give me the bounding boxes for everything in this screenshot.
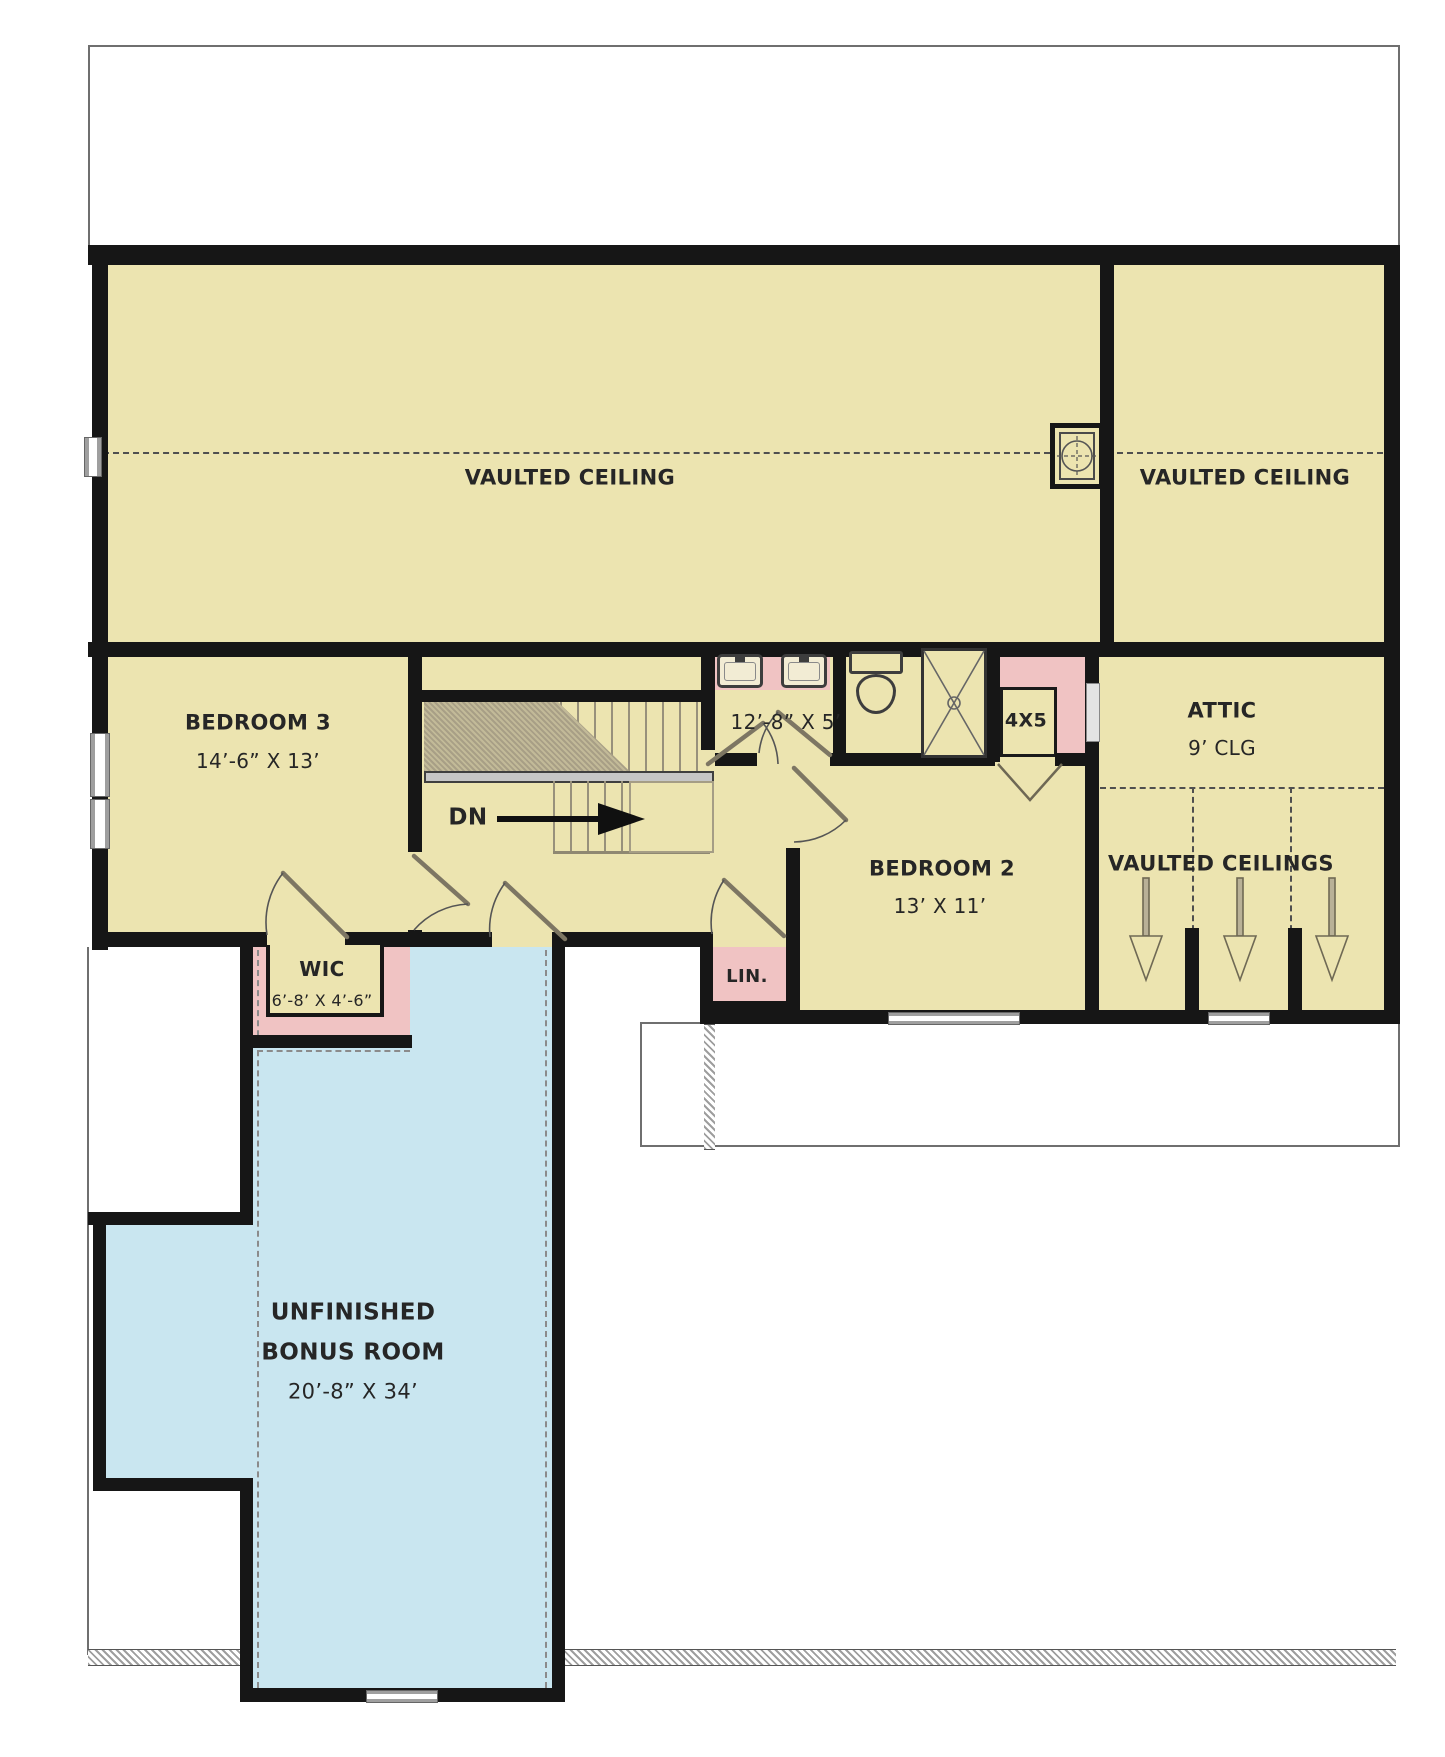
floor-plan: VAULTED CEILING VAULTED CEILING BEDROOM …: [0, 0, 1445, 1757]
wall-bonus-west-lower: [240, 1478, 253, 1702]
bonus-slope-line-right: [545, 950, 547, 1688]
window-left-ridge: [84, 437, 102, 477]
label-wic-dim: 6’-8’ X 4’-6”: [272, 993, 373, 1009]
eave-hatch-vertical: [704, 1024, 715, 1150]
label-bath-dim: 12’-8” X 5’: [731, 712, 842, 732]
wall-toilet-divider: [833, 645, 846, 766]
bonus-room-upper-left: [253, 1048, 410, 1225]
wall-bedroom2-north-a: [715, 753, 757, 766]
wall-shower-east: [987, 645, 1000, 762]
wall-wic-south: [240, 1035, 412, 1048]
shower-icon: [921, 648, 987, 758]
wall-hall-south-c: [563, 932, 703, 947]
label-bedroom3-dim: 14’-6” X 13’: [196, 751, 320, 771]
label-bedroom2-dim: 13’ X 11’: [894, 896, 987, 916]
wall-void-east: [240, 945, 253, 1225]
label-bedroom2: BEDROOM 2: [869, 859, 1015, 880]
attic-vault-line: [1100, 787, 1384, 789]
ridge-line-left: [103, 452, 1050, 454]
closet-4x5-shelf-right: [1057, 657, 1085, 757]
label-attic-clg: 9’ CLG: [1188, 738, 1256, 758]
stair-landing: [629, 781, 714, 853]
wall-bonus-jog: [93, 1478, 253, 1491]
wall-vault-stub-2: [1288, 928, 1302, 1014]
skylight-icon: [1050, 423, 1104, 489]
roof-outline-lower-right: [640, 1022, 1400, 1147]
label-bonus-dim: 20’-8” X 34’: [288, 1382, 418, 1403]
wall-bath-west: [701, 652, 715, 750]
wall-exterior-right: [1384, 245, 1400, 1022]
label-vaulted-ceiling-right: VAULTED CEILING: [1140, 468, 1350, 489]
wall-bonus-west-upper: [93, 1225, 106, 1491]
bonus-slope-line-left: [257, 950, 259, 1688]
eave-hatch-right: [563, 1649, 1396, 1666]
window-bedroom3-2: [90, 799, 110, 849]
label-wic: WIC: [299, 959, 344, 979]
wall-exterior-top: [88, 245, 1400, 265]
attic-door-opening: [1086, 683, 1100, 742]
window-vault-bay: [1208, 1012, 1270, 1025]
bonus-room-upper-right: [410, 947, 552, 1225]
label-bonus-line2: BONUS ROOM: [261, 1342, 444, 1365]
toilet-tank-icon: [849, 651, 903, 674]
window-bedroom2: [888, 1012, 1020, 1025]
label-closet-4x5: 4X5: [1005, 712, 1047, 731]
wall-vault-stub-1: [1185, 928, 1199, 1014]
sink-icon: [717, 654, 763, 688]
wall-bonus-east: [552, 932, 565, 1702]
eave-hatch-left: [88, 1649, 242, 1666]
window-bonus: [366, 1690, 438, 1703]
label-vaulted-ceilings-bays: VAULTED CEILINGS: [1108, 854, 1334, 875]
open-void: [90, 947, 240, 1212]
wall-bedroom3-east-upper: [408, 642, 422, 852]
wall-bedroom2-west: [786, 848, 800, 1015]
label-attic: ATTIC: [1188, 701, 1257, 722]
window-bedroom3-1: [90, 733, 110, 797]
label-bedroom3: BEDROOM 3: [185, 713, 331, 734]
label-stairs-dn: DN: [448, 807, 487, 830]
wall-bedroom2-north-c: [1055, 753, 1085, 766]
wall-stair-north: [420, 690, 703, 702]
wall-void-south: [88, 1212, 253, 1225]
bonus-slope-line-top: [257, 1050, 410, 1052]
bonus-room-lower: [240, 1478, 552, 1702]
roof-edge-left: [87, 947, 89, 1655]
roof-outline-top: [88, 45, 1400, 250]
label-linen: LIN.: [726, 968, 768, 986]
sink-icon: [781, 654, 827, 688]
label-bonus-line1: UNFINISHED: [271, 1302, 436, 1325]
ridge-line-right: [1117, 452, 1383, 454]
middle-band: [95, 645, 1393, 947]
label-vaulted-ceiling-left: VAULTED CEILING: [465, 468, 675, 489]
